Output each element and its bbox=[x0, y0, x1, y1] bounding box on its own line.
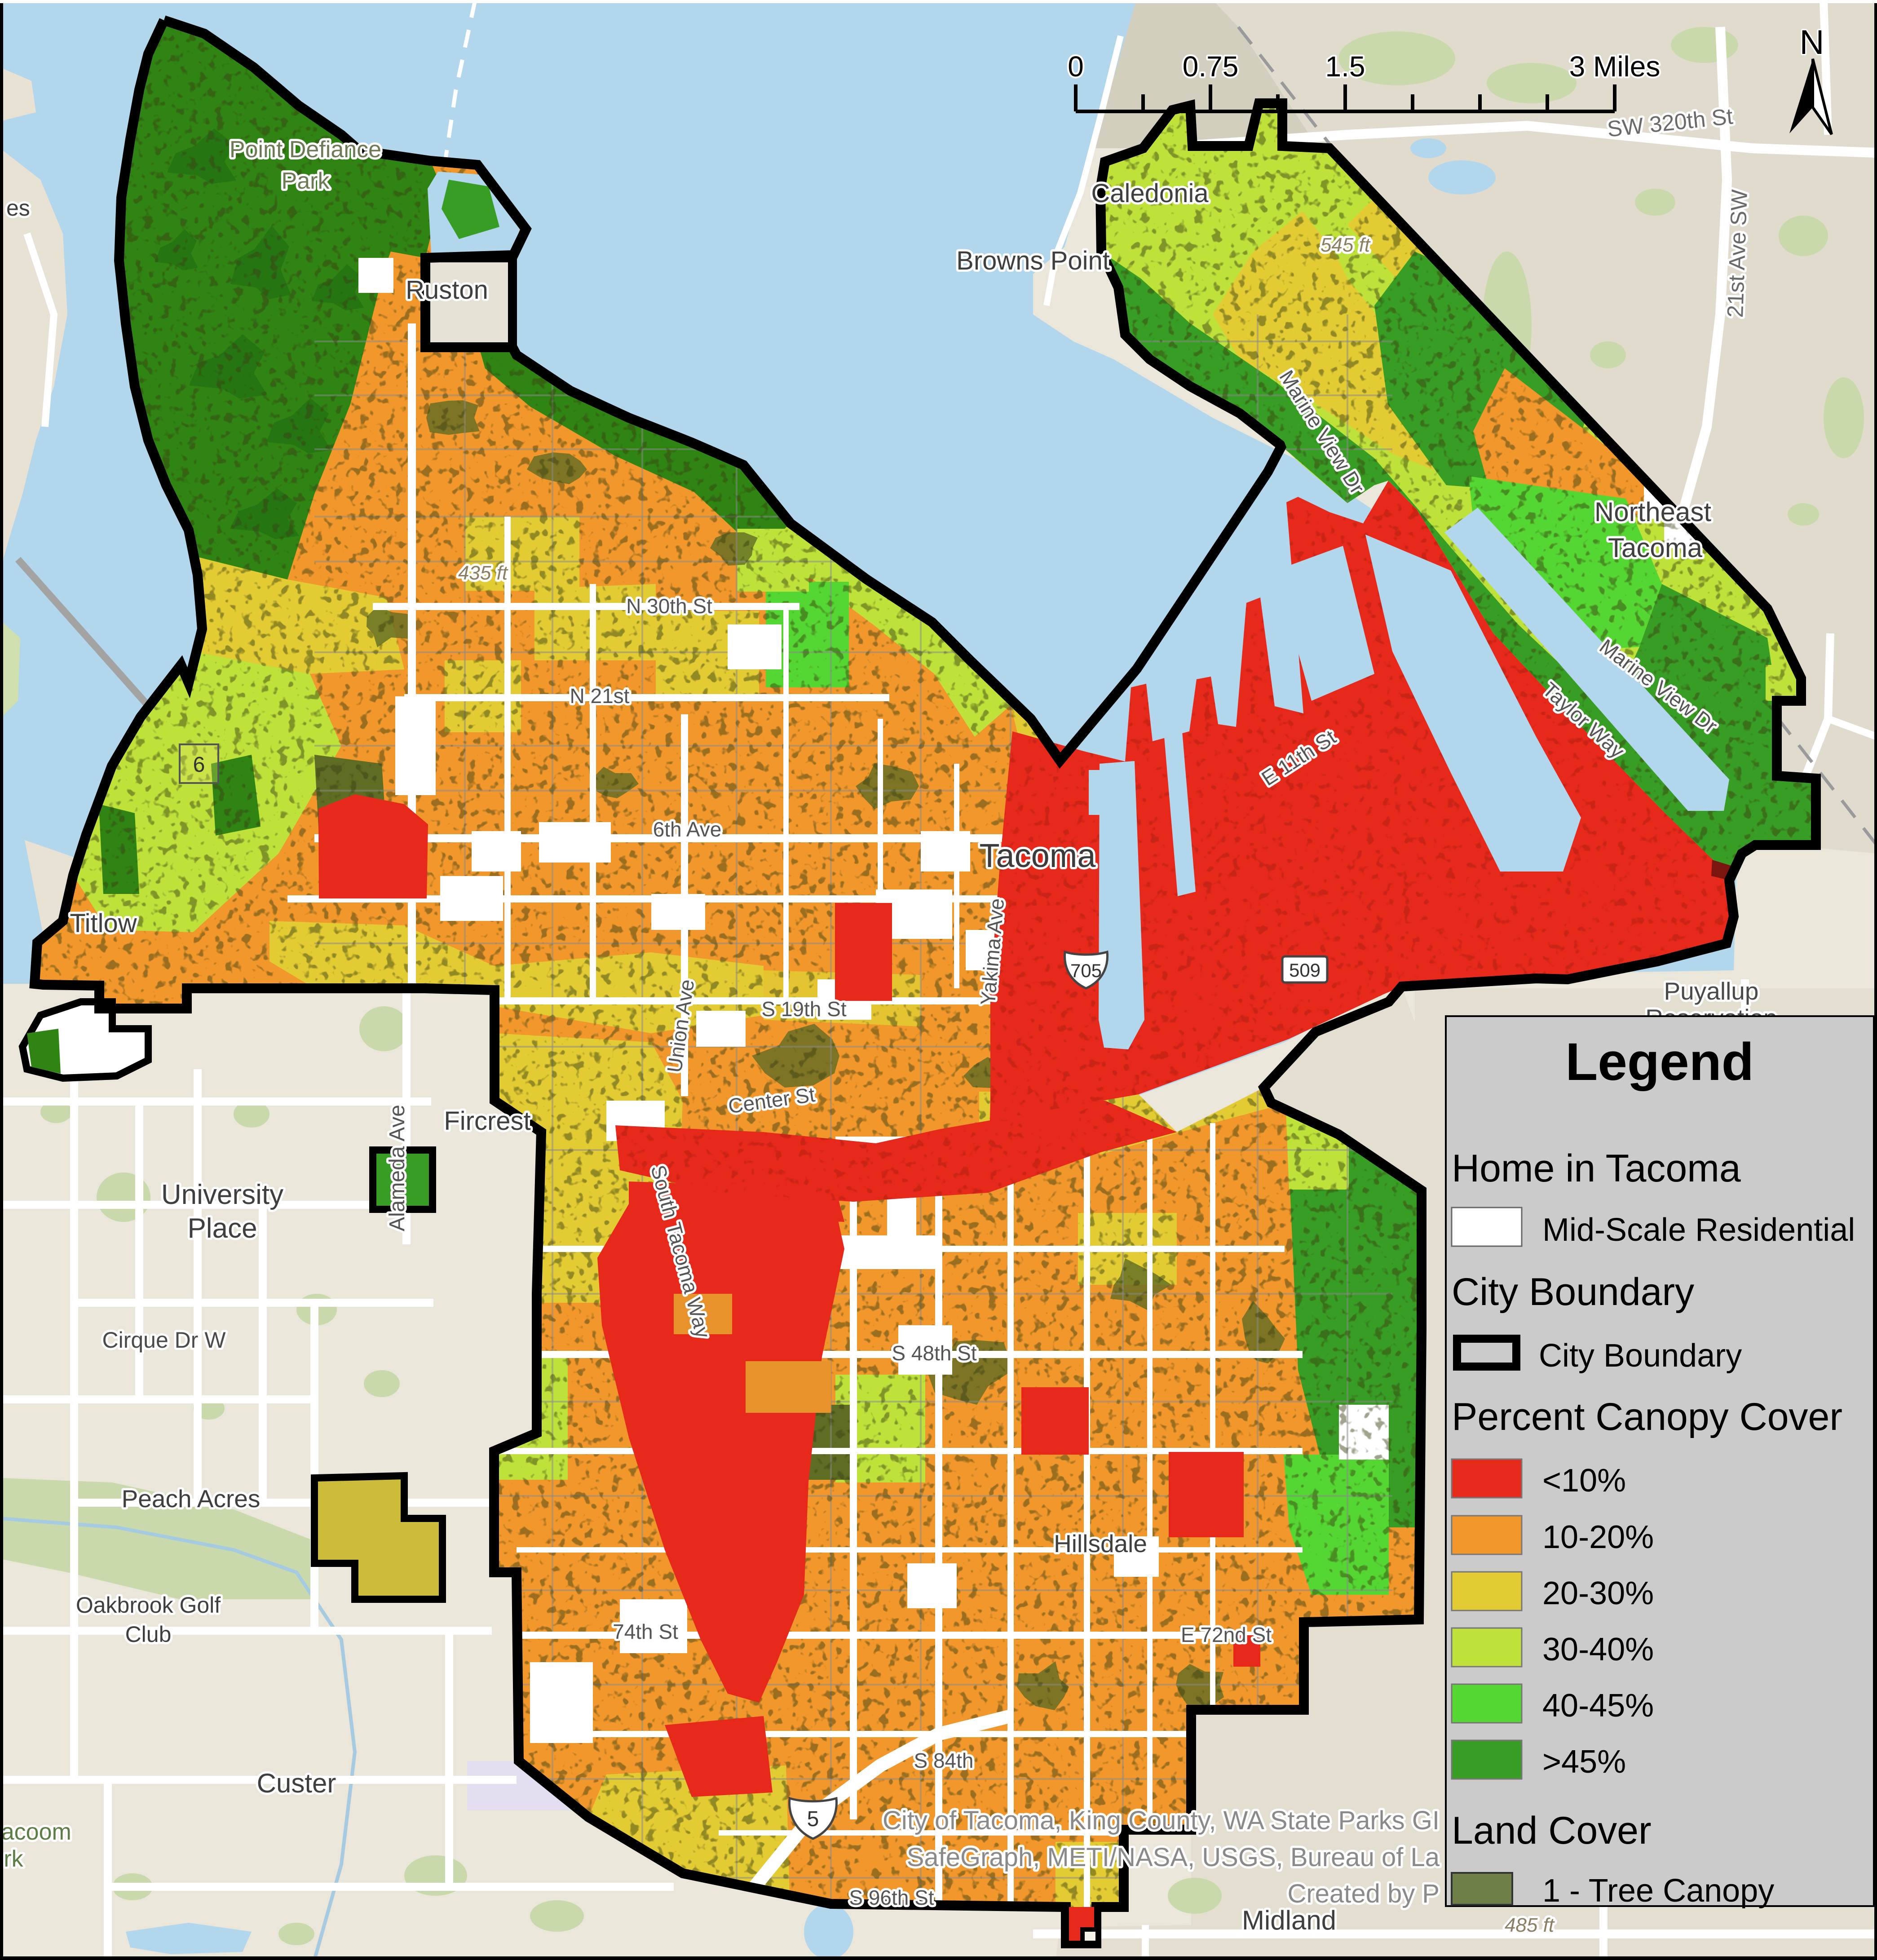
svg-text:509: 509 bbox=[1289, 960, 1321, 981]
svg-text:SafeGraph, METI/NASA, USGS, Bu: SafeGraph, METI/NASA, USGS, Bureau of La bbox=[907, 1843, 1440, 1872]
svg-text:S 48th St: S 48th St bbox=[892, 1341, 976, 1365]
svg-text:S 19th St: S 19th St bbox=[761, 997, 846, 1021]
svg-text:S 84th: S 84th bbox=[914, 1749, 974, 1772]
svg-text:1 - Tree Canopy: 1 - Tree Canopy bbox=[1542, 1873, 1774, 1909]
svg-text:Legend: Legend bbox=[1565, 1032, 1754, 1092]
svg-text:Tacoma: Tacoma bbox=[1608, 533, 1703, 563]
svg-text:Place: Place bbox=[187, 1213, 257, 1244]
svg-text:Club: Club bbox=[125, 1622, 172, 1647]
svg-text:Midland: Midland bbox=[1242, 1905, 1336, 1935]
svg-text:E 72nd St: E 72nd St bbox=[1181, 1623, 1272, 1646]
svg-text:Point Defiance: Point Defiance bbox=[230, 137, 381, 163]
svg-text:3 Miles: 3 Miles bbox=[1569, 50, 1661, 83]
svg-text:City Boundary: City Boundary bbox=[1539, 1338, 1742, 1374]
svg-text:Land Cover: Land Cover bbox=[1452, 1809, 1652, 1852]
svg-text:Caledonia: Caledonia bbox=[1091, 179, 1209, 208]
svg-text:City Boundary: City Boundary bbox=[1452, 1270, 1694, 1314]
svg-text:>45%: >45% bbox=[1542, 1744, 1626, 1780]
svg-text:30-40%: 30-40% bbox=[1542, 1632, 1654, 1668]
svg-text:Tacoma: Tacoma bbox=[979, 837, 1096, 874]
svg-text:Hillsdale: Hillsdale bbox=[1054, 1530, 1147, 1557]
svg-text:Cirque Dr W: Cirque Dr W bbox=[102, 1327, 226, 1353]
svg-text:5: 5 bbox=[807, 1807, 819, 1831]
svg-text:Ruston: Ruston bbox=[406, 275, 488, 305]
svg-text:University: University bbox=[161, 1179, 283, 1210]
svg-text:lacoom: lacoom bbox=[0, 1819, 71, 1845]
svg-text:Browns Point: Browns Point bbox=[956, 246, 1110, 275]
svg-text:Home in Tacoma: Home in Tacoma bbox=[1452, 1147, 1741, 1190]
svg-text:6: 6 bbox=[193, 753, 205, 777]
svg-text:Percent Canopy Cover: Percent Canopy Cover bbox=[1452, 1395, 1842, 1438]
svg-text:Mid-Scale Residential: Mid-Scale Residential bbox=[1542, 1212, 1855, 1248]
svg-text:Park: Park bbox=[282, 168, 330, 194]
svg-text:Alameda Ave: Alameda Ave bbox=[385, 1105, 409, 1231]
svg-text:20-30%: 20-30% bbox=[1542, 1575, 1654, 1611]
svg-text:S 96th St: S 96th St bbox=[849, 1886, 934, 1909]
svg-text:6th Ave: 6th Ave bbox=[653, 818, 722, 841]
svg-text:40-45%: 40-45% bbox=[1542, 1688, 1654, 1724]
svg-text:Custer: Custer bbox=[257, 1768, 336, 1798]
svg-text:Fircrest: Fircrest bbox=[444, 1106, 530, 1136]
svg-text:705: 705 bbox=[1070, 960, 1102, 981]
svg-text:21st Ave SW: 21st Ave SW bbox=[1722, 189, 1752, 318]
svg-text:Oakbrook Golf: Oakbrook Golf bbox=[76, 1593, 221, 1618]
svg-text:rk: rk bbox=[4, 1846, 23, 1872]
svg-text:Peach Acres: Peach Acres bbox=[122, 1485, 261, 1513]
svg-text:0: 0 bbox=[1068, 50, 1084, 83]
svg-text:485 ft: 485 ft bbox=[1505, 1914, 1555, 1936]
svg-text:0.75: 0.75 bbox=[1183, 50, 1239, 83]
svg-text:N 21st: N 21st bbox=[570, 684, 630, 708]
svg-text:10-20%: 10-20% bbox=[1542, 1519, 1654, 1555]
svg-text:545 ft: 545 ft bbox=[1321, 234, 1371, 256]
svg-text:Titlow: Titlow bbox=[70, 909, 137, 938]
svg-text:<10%: <10% bbox=[1542, 1463, 1626, 1499]
svg-text:435 ft: 435 ft bbox=[458, 562, 508, 584]
svg-text:Created by P: Created by P bbox=[1287, 1879, 1440, 1908]
svg-text:Northeast: Northeast bbox=[1594, 497, 1711, 527]
svg-text:74th St: 74th St bbox=[613, 1620, 678, 1643]
svg-text:N 30th St: N 30th St bbox=[626, 594, 712, 618]
svg-text:Puyallup: Puyallup bbox=[1664, 977, 1759, 1005]
svg-text:1.5: 1.5 bbox=[1325, 50, 1365, 83]
svg-text:N: N bbox=[1800, 23, 1824, 62]
svg-text:City of Tacoma, King County, W: City of Tacoma, King County, WA State Pa… bbox=[883, 1806, 1440, 1835]
svg-text:es: es bbox=[6, 195, 30, 221]
